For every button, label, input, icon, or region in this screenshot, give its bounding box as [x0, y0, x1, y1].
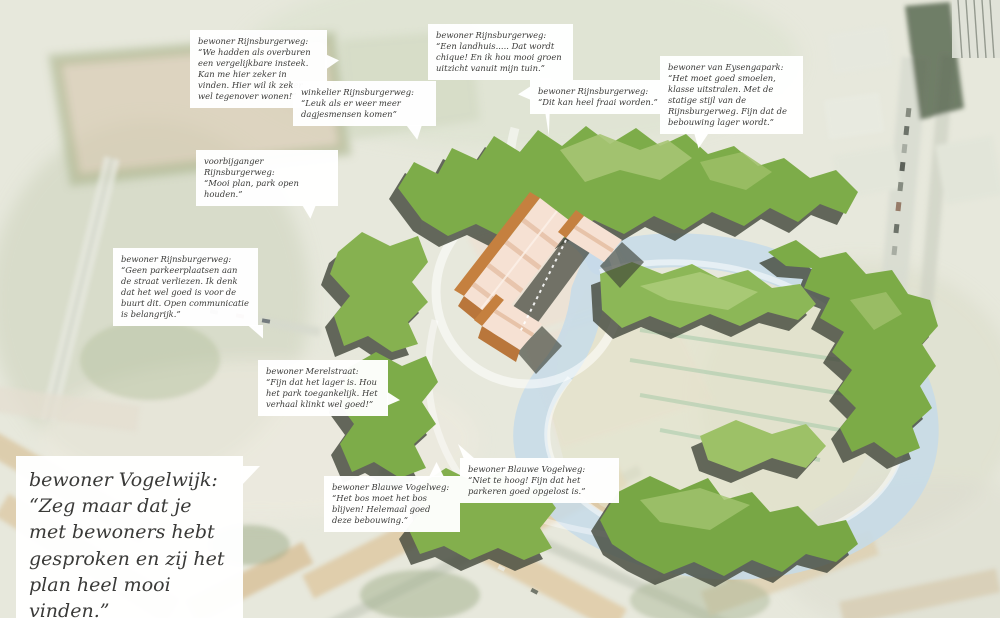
callout-quote: “Fijn dat het lager is. Hou het park toe…: [266, 377, 378, 409]
callout-quote: “Dit kan heel fraai worden.”: [538, 97, 658, 107]
callout-quote: “Geen parkeerplaatsen aan de straat verl…: [121, 265, 249, 319]
callout-rijnsburgerweg-landhuis: bewoner Rijnsburgerweg: “Een landhuis...…: [428, 24, 573, 80]
callout-blauwe-vogelweg-bos: bewoner Blauwe Vogelweg: “Het bos moet h…: [324, 476, 460, 532]
callout-merelstraat: bewoner Merelstraat: “Fijn dat het lager…: [258, 360, 388, 416]
callout-winkelier-rijnsburgerweg: winkelier Rijnsburgerweg: “Leuk als er w…: [293, 81, 436, 126]
callout-speaker: bewoner Rijnsburgerweg:: [121, 254, 250, 265]
callout-quote: “Een landhuis..... Dat wordt chique! En …: [436, 41, 562, 73]
callout-speaker: bewoner Merelstraat:: [266, 366, 380, 377]
callout-speaker: winkelier Rijnsburgerweg:: [301, 87, 428, 98]
callout-voorbijganger-rijnsburgerweg: voorbijganger Rijnsburgerweg: “Mooi plan…: [196, 150, 338, 206]
callout-quote: “Niet te hoog! Fijn dat het parkeren goe…: [468, 475, 585, 496]
callout-speaker: bewoner Rijnsburgerweg:: [538, 86, 665, 97]
callout-speaker: bewoner Blauwe Vogelweg:: [468, 464, 611, 475]
callout-speaker: bewoner van Eysengapark:: [668, 62, 795, 73]
callout-speaker: voorbijganger Rijnsburgerweg:: [204, 156, 330, 178]
callout-quote: “Leuk als er weer meer dagjesmensen kome…: [301, 98, 401, 119]
callout-eysengapark: bewoner van Eysengapark: “Het moet goed …: [660, 56, 803, 134]
callout-rijnsburgerweg-fraai: bewoner Rijnsburgerweg: “Dit kan heel fr…: [530, 80, 673, 114]
callout-quote: “Het bos moet het bos blijven! Helemaal …: [332, 493, 430, 525]
featured-quote-vogelwijk: bewoner Vogelwijk: “Zeg maar dat je met …: [16, 456, 243, 618]
callout-speaker: bewoner Rijnsburgerweg:: [198, 36, 319, 47]
featured-quote-text: “Zeg maar dat je met bewoners hebt gespr…: [29, 495, 225, 618]
callout-speaker: bewoner Blauwe Vogelweg:: [332, 482, 452, 493]
callout-quote: “Het moet goed smoelen, klasse uitstrale…: [668, 73, 787, 127]
callout-quote: “Mooi plan, park open houden.”: [204, 178, 299, 199]
callout-blauwe-vogelweg-hoogte: bewoner Blauwe Vogelweg: “Niet te hoog! …: [460, 458, 619, 503]
masterplan-visualization: bewoner Rijnsburgerweg: “We hadden als o…: [0, 0, 1000, 618]
callout-speaker: bewoner Rijnsburgerweg:: [436, 30, 565, 41]
featured-quote-speaker: bewoner Vogelwijk:: [29, 469, 218, 491]
callout-rijnsburgerweg-parkeerplaatsen: bewoner Rijnsburgerweg: “Geen parkeerpla…: [113, 248, 258, 326]
